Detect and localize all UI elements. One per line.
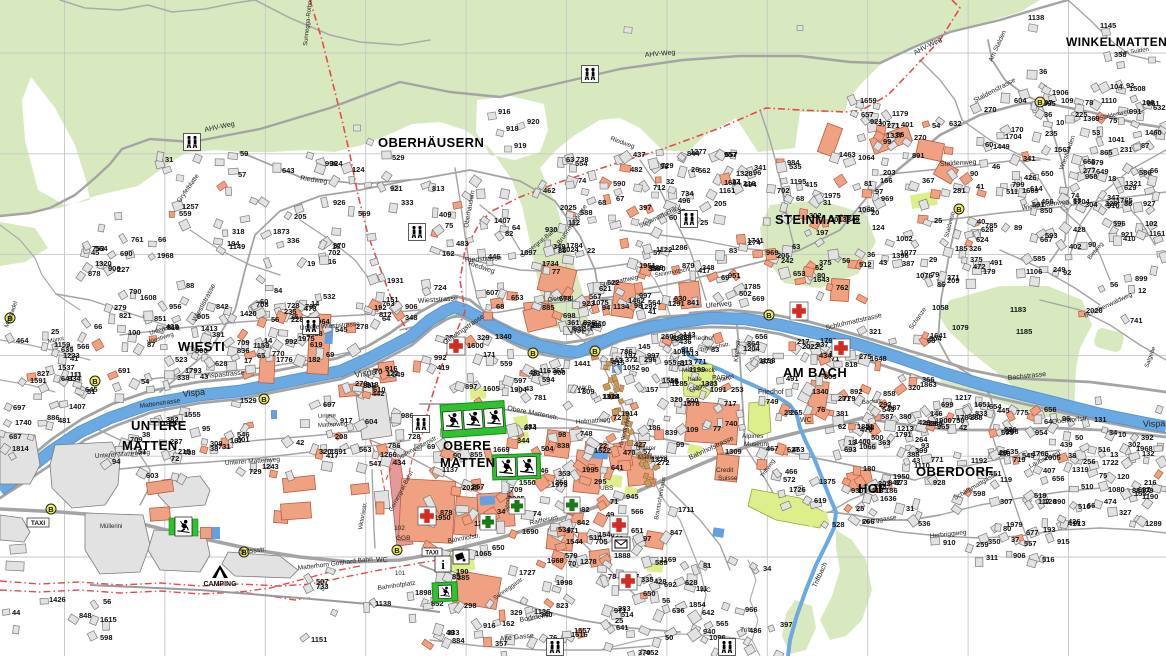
svg-text:AM BACH: AM BACH [783,365,847,380]
svg-text:16: 16 [328,257,336,266]
svg-text:1138: 1138 [375,599,391,608]
svg-text:1161: 1161 [1149,229,1165,238]
svg-text:1544: 1544 [566,537,584,546]
svg-text:TAXI: TAXI [31,520,46,527]
svg-text:18: 18 [332,242,340,251]
svg-text:WC: WC [376,557,388,564]
svg-text:1002: 1002 [896,234,913,243]
svg-text:891: 891 [912,151,925,160]
svg-text:1578: 1578 [683,399,700,408]
svg-text:185: 185 [955,244,968,253]
svg-text:1641: 1641 [930,331,947,340]
svg-text:327: 327 [1119,508,1132,517]
svg-text:WC: WC [800,417,812,424]
svg-text:1648: 1648 [870,354,887,363]
svg-text:1145: 1145 [1100,21,1116,30]
svg-text:62: 62 [838,422,846,431]
svg-text:1179: 1179 [892,109,908,118]
svg-text:124: 124 [872,223,885,232]
svg-text:408: 408 [183,448,196,457]
svg-text:918: 918 [366,380,379,389]
svg-text:748: 748 [580,429,593,438]
svg-text:604: 604 [365,417,378,426]
svg-text:1277: 1277 [690,147,707,156]
svg-text:649: 649 [1096,167,1109,176]
svg-text:1213: 1213 [897,424,914,433]
svg-text:656: 656 [1052,474,1065,483]
svg-text:34: 34 [1109,428,1118,437]
svg-text:632: 632 [1153,103,1166,112]
svg-text:589: 589 [651,263,664,272]
svg-text:MATTEN: MATTEN [440,455,496,470]
svg-text:STEINMATTE: STEINMATTE [775,212,861,227]
svg-text:56: 56 [662,596,670,605]
svg-text:120: 120 [1117,472,1130,481]
svg-text:1722: 1722 [1102,458,1119,467]
svg-text:619: 619 [814,496,827,505]
svg-text:76: 76 [817,405,825,414]
svg-text:598: 598 [100,633,113,642]
svg-text:781: 781 [534,393,547,402]
svg-text:132: 132 [1142,449,1155,458]
svg-text:516: 516 [1098,445,1111,454]
svg-text:945: 945 [626,492,639,501]
svg-text:1669: 1669 [493,445,510,454]
svg-text:410: 410 [1123,234,1136,243]
svg-text:1080: 1080 [1108,485,1125,494]
svg-text:1257: 1257 [182,202,199,211]
svg-text:481: 481 [58,416,71,425]
svg-text:Alpines: Alpines [742,433,764,440]
svg-text:1863: 1863 [920,380,937,389]
svg-text:528: 528 [832,520,845,529]
svg-text:335: 335 [641,575,654,584]
svg-text:641: 641 [61,374,74,383]
svg-text:823: 823 [556,601,569,610]
svg-text:1740: 1740 [15,418,32,427]
svg-text:585: 585 [1033,254,1046,263]
svg-text:98: 98 [558,430,566,439]
svg-text:1906: 1906 [1052,88,1069,97]
svg-text:1704: 1704 [1005,132,1023,141]
svg-text:75: 75 [1099,471,1107,480]
svg-text:162: 162 [502,619,515,628]
svg-text:1529: 1529 [240,396,257,405]
svg-text:1266: 1266 [380,450,397,459]
svg-text:741: 741 [1130,316,1143,325]
svg-text:547: 547 [369,459,382,468]
svg-text:180: 180 [863,464,876,473]
svg-text:64: 64 [512,223,521,232]
svg-text:1319: 1319 [1072,465,1089,474]
svg-text:371: 371 [947,273,960,282]
svg-text:Friedhof: Friedhof [690,335,714,342]
svg-text:839: 839 [665,428,678,437]
svg-text:572: 572 [783,475,796,484]
svg-text:1931: 1931 [387,276,404,285]
svg-text:2025: 2025 [560,203,577,212]
svg-text:827: 827 [37,369,50,378]
svg-text:813: 813 [432,184,445,193]
svg-text:97: 97 [643,534,651,543]
svg-text:1340: 1340 [495,332,512,341]
svg-text:1065: 1065 [475,549,492,558]
svg-text:Museum: Museum [744,441,769,448]
svg-text:131: 131 [1094,415,1107,424]
svg-text:HOF: HOF [858,481,887,496]
svg-text:770: 770 [272,349,285,358]
svg-text:Müllerini: Müllerini [100,524,122,530]
svg-text:392: 392 [1141,433,1154,442]
svg-text:63: 63 [792,242,800,251]
svg-text:842: 842 [216,302,229,311]
svg-text:64: 64 [382,314,391,323]
svg-text:77: 77 [713,424,721,433]
svg-text:921: 921 [390,184,403,193]
svg-text:956: 956 [169,302,182,311]
svg-text:182: 182 [308,355,321,364]
svg-text:217: 217 [797,337,810,346]
svg-text:274: 274 [524,423,537,432]
svg-text:348: 348 [405,313,418,322]
svg-text:1079: 1079 [952,323,969,332]
svg-text:510: 510 [1081,482,1094,491]
svg-text:25: 25 [856,504,864,513]
svg-text:858: 858 [883,389,896,398]
svg-text:307: 307 [1000,497,1013,506]
svg-text:336: 336 [287,236,300,245]
svg-text:642: 642 [702,608,715,617]
svg-text:109: 109 [686,425,699,434]
svg-text:1537: 1537 [58,363,75,372]
svg-text:347: 347 [1107,193,1120,202]
svg-text:50: 50 [1075,433,1083,442]
svg-text:1338: 1338 [602,392,619,401]
svg-text:821: 821 [119,311,132,320]
svg-text:66: 66 [158,235,166,244]
svg-text:462: 462 [543,186,556,195]
svg-text:923: 923 [582,299,595,308]
svg-text:709: 709 [237,338,250,347]
svg-text:50: 50 [665,633,673,642]
svg-text:17: 17 [244,356,252,365]
svg-text:227: 227 [117,265,130,274]
svg-text:516: 516 [1042,555,1055,564]
svg-text:415: 415 [805,180,818,189]
svg-text:470: 470 [623,448,636,457]
svg-text:842: 842 [577,518,590,527]
svg-text:545: 545 [1022,451,1035,460]
svg-text:WKB: WKB [577,385,592,392]
svg-text:397: 397 [639,203,652,212]
svg-text:Friedhof: Friedhof [758,389,784,396]
svg-text:1557: 1557 [574,626,591,635]
svg-text:B: B [530,349,536,358]
svg-text:197: 197 [816,228,829,237]
svg-text:Suisse: Suisse [718,475,738,482]
svg-text:1726: 1726 [789,485,806,494]
svg-text:543: 543 [882,405,895,414]
svg-text:31: 31 [906,504,914,513]
svg-text:1851: 1851 [857,422,874,431]
svg-text:385: 385 [457,573,470,582]
svg-text:1979: 1979 [1006,520,1023,529]
svg-text:44: 44 [12,608,21,617]
svg-text:402: 402 [1069,242,1082,251]
svg-text:46: 46 [992,162,1000,171]
svg-text:915: 915 [1057,537,1070,546]
svg-text:387: 387 [902,259,915,268]
svg-text:2025: 2025 [462,483,479,492]
svg-text:78: 78 [1085,98,1093,107]
svg-text:274: 274 [748,238,761,247]
svg-text:72: 72 [171,454,179,463]
svg-text:1995: 1995 [582,465,599,474]
svg-text:311: 311 [986,553,998,562]
svg-text:179: 179 [983,267,996,276]
svg-text:1888: 1888 [614,551,631,560]
svg-text:385: 385 [907,450,920,459]
svg-text:36: 36 [1044,110,1052,119]
svg-text:761: 761 [131,235,144,244]
svg-text:25: 25 [934,216,942,225]
svg-text:775: 775 [1016,408,1029,417]
svg-text:514: 514 [621,610,634,619]
svg-text:253: 253 [731,385,744,394]
svg-text:70: 70 [568,559,576,568]
svg-text:28: 28 [784,408,792,417]
svg-text:116: 116 [539,366,551,375]
svg-text:166: 166 [880,176,893,185]
svg-text:95: 95 [202,424,210,433]
svg-text:482: 482 [630,165,643,174]
svg-text:275: 275 [859,352,872,361]
svg-text:536: 536 [918,519,931,528]
svg-text:865: 865 [1100,148,1113,157]
svg-text:145: 145 [638,342,651,351]
svg-text:308: 308 [210,439,223,448]
svg-text:127: 127 [692,385,703,392]
svg-text:549: 549 [392,370,405,379]
svg-text:546: 546 [237,430,250,439]
svg-text:71: 71 [610,497,618,506]
svg-text:699: 699 [941,400,954,409]
svg-text:992: 992 [285,337,298,346]
svg-text:628: 628 [215,359,228,368]
svg-text:1149: 1149 [229,242,245,251]
svg-text:318: 318 [232,227,245,236]
svg-text:53: 53 [1092,128,1100,137]
svg-text:785: 785 [985,221,998,230]
svg-text:1605: 1605 [483,384,500,393]
svg-text:579: 579 [565,551,578,560]
svg-text:68: 68 [796,194,804,203]
svg-text:338: 338 [177,373,190,382]
svg-text:1441: 1441 [574,359,591,368]
svg-text:566: 566 [77,342,90,351]
svg-text:62: 62 [815,263,823,272]
svg-text:380: 380 [899,412,912,421]
svg-text:348: 348 [702,263,715,272]
svg-text:110: 110 [594,319,606,328]
svg-text:B: B [956,205,962,214]
svg-text:928: 928 [933,478,946,487]
svg-text:401: 401 [901,120,914,129]
svg-text:1041: 1041 [1108,135,1125,144]
svg-text:848: 848 [79,611,92,620]
svg-text:619: 619 [310,340,323,349]
svg-text:56: 56 [103,597,111,606]
svg-text:1814: 1814 [12,444,30,453]
svg-text:885: 885 [542,303,555,312]
svg-text:650: 650 [492,543,505,552]
svg-text:1669: 1669 [1022,186,1039,195]
svg-text:426: 426 [1068,517,1081,526]
svg-text:992: 992 [434,353,447,362]
svg-text:1195: 1195 [790,177,806,186]
svg-text:203: 203 [883,168,896,177]
svg-text:12: 12 [1138,286,1146,295]
svg-text:906: 906 [405,302,418,311]
svg-text:650: 650 [1041,169,1054,178]
svg-text:77: 77 [552,267,560,276]
svg-text:375: 375 [970,255,983,264]
svg-text:466: 466 [785,467,798,476]
svg-text:270: 270 [914,133,927,142]
svg-text:UBS: UBS [600,485,614,492]
svg-text:353: 353 [558,469,571,478]
svg-text:954: 954 [1035,428,1048,437]
svg-text:37: 37 [1011,535,1019,544]
svg-text:205: 205 [294,212,307,221]
svg-text:1289: 1289 [1145,519,1162,528]
svg-text:B: B [394,546,400,555]
svg-text:Credit: Credit [716,467,734,474]
svg-text:1873: 1873 [273,227,290,236]
svg-text:632: 632 [949,119,962,128]
svg-text:32: 32 [666,177,674,186]
svg-text:643: 643 [282,166,295,175]
svg-text:679: 679 [1091,158,1104,167]
svg-text:OBERE: OBERE [443,438,491,453]
svg-text:54: 54 [141,377,150,386]
svg-text:559: 559 [500,359,513,368]
svg-text:10: 10 [1118,430,1126,439]
svg-text:687: 687 [9,432,22,441]
svg-text:186: 186 [648,423,661,432]
svg-text:100: 100 [128,328,141,337]
svg-text:119: 119 [1000,475,1012,484]
svg-text:104: 104 [1110,82,1123,91]
svg-text:1659: 1659 [860,96,877,105]
svg-text:10: 10 [1056,118,1064,127]
svg-text:Trift: Trift [740,627,751,634]
svg-text:TAXI: TAXI [425,551,439,557]
svg-text:1278: 1278 [580,557,597,566]
svg-text:81: 81 [864,179,872,188]
svg-text:193: 193 [1043,525,1056,534]
svg-text:740: 740 [725,419,738,428]
svg-text:68: 68 [496,302,504,311]
svg-text:1426: 1426 [49,595,66,604]
svg-text:838: 838 [557,441,570,450]
svg-text:565: 565 [716,619,729,628]
svg-text:329: 329 [477,333,490,342]
svg-text:80: 80 [817,271,825,280]
svg-text:562: 562 [698,166,711,175]
svg-text:439: 439 [1060,440,1073,449]
svg-text:379: 379 [1141,486,1154,495]
svg-text:320: 320 [670,395,683,404]
svg-text:92: 92 [1126,81,1134,90]
svg-text:1286: 1286 [671,243,688,252]
svg-text:1727: 1727 [519,568,536,577]
svg-text:417: 417 [326,451,339,460]
svg-text:1106: 1106 [1026,267,1042,276]
svg-text:677: 677 [1026,528,1039,537]
svg-text:1968: 1968 [157,251,174,260]
svg-text:264: 264 [915,435,928,444]
svg-text:1138: 1138 [1028,13,1044,22]
svg-text:690: 690 [120,249,133,258]
svg-text:OBERHÄUSERN: OBERHÄUSERN [378,135,484,150]
svg-text:452: 452 [646,648,659,656]
svg-text:510: 510 [1078,502,1091,511]
svg-text:654: 654 [989,402,1002,411]
svg-text:41: 41 [648,307,656,316]
svg-text:82: 82 [505,229,513,238]
svg-text:428: 428 [1073,225,1086,234]
svg-text:56: 56 [1110,280,1118,289]
svg-text:707: 707 [305,302,318,311]
svg-text:624: 624 [976,235,989,244]
svg-text:333: 333 [401,198,414,207]
svg-text:216: 216 [1144,478,1157,487]
svg-text:259: 259 [976,540,989,549]
svg-text:1375: 1375 [819,477,836,486]
svg-text:87: 87 [1141,141,1149,150]
svg-text:326: 326 [969,244,982,253]
svg-text:841: 841 [687,298,700,307]
svg-text:897: 897 [465,382,478,391]
svg-text:B: B [766,311,772,320]
svg-text:564: 564 [648,298,661,307]
svg-text:302: 302 [1128,440,1141,449]
svg-text:171: 171 [483,350,496,359]
svg-text:1460: 1460 [1145,128,1162,137]
svg-text:1064: 1064 [858,153,876,162]
svg-text:231: 231 [1120,145,1133,154]
svg-text:54: 54 [932,121,941,130]
svg-text:1309: 1309 [725,447,742,456]
svg-text:1400: 1400 [854,437,871,446]
svg-text:26: 26 [691,165,699,174]
svg-text:321: 321 [869,327,882,336]
svg-text:426: 426 [1024,173,1037,182]
svg-text:Vispa: Vispa [1143,418,1166,429]
svg-text:Mattenweg: Mattenweg [638,455,667,461]
svg-text:966: 966 [745,605,758,614]
svg-text:OBERDORF: OBERDORF [916,464,994,479]
svg-text:1785: 1785 [744,282,761,291]
svg-text:1463: 1463 [839,150,856,159]
svg-text:604: 604 [1014,96,1027,105]
svg-text:19: 19 [307,259,315,268]
svg-text:CAMPING: CAMPING [203,581,237,588]
svg-text:653: 653 [793,269,806,278]
svg-text:49: 49 [446,628,454,637]
svg-text:1734: 1734 [542,259,560,268]
